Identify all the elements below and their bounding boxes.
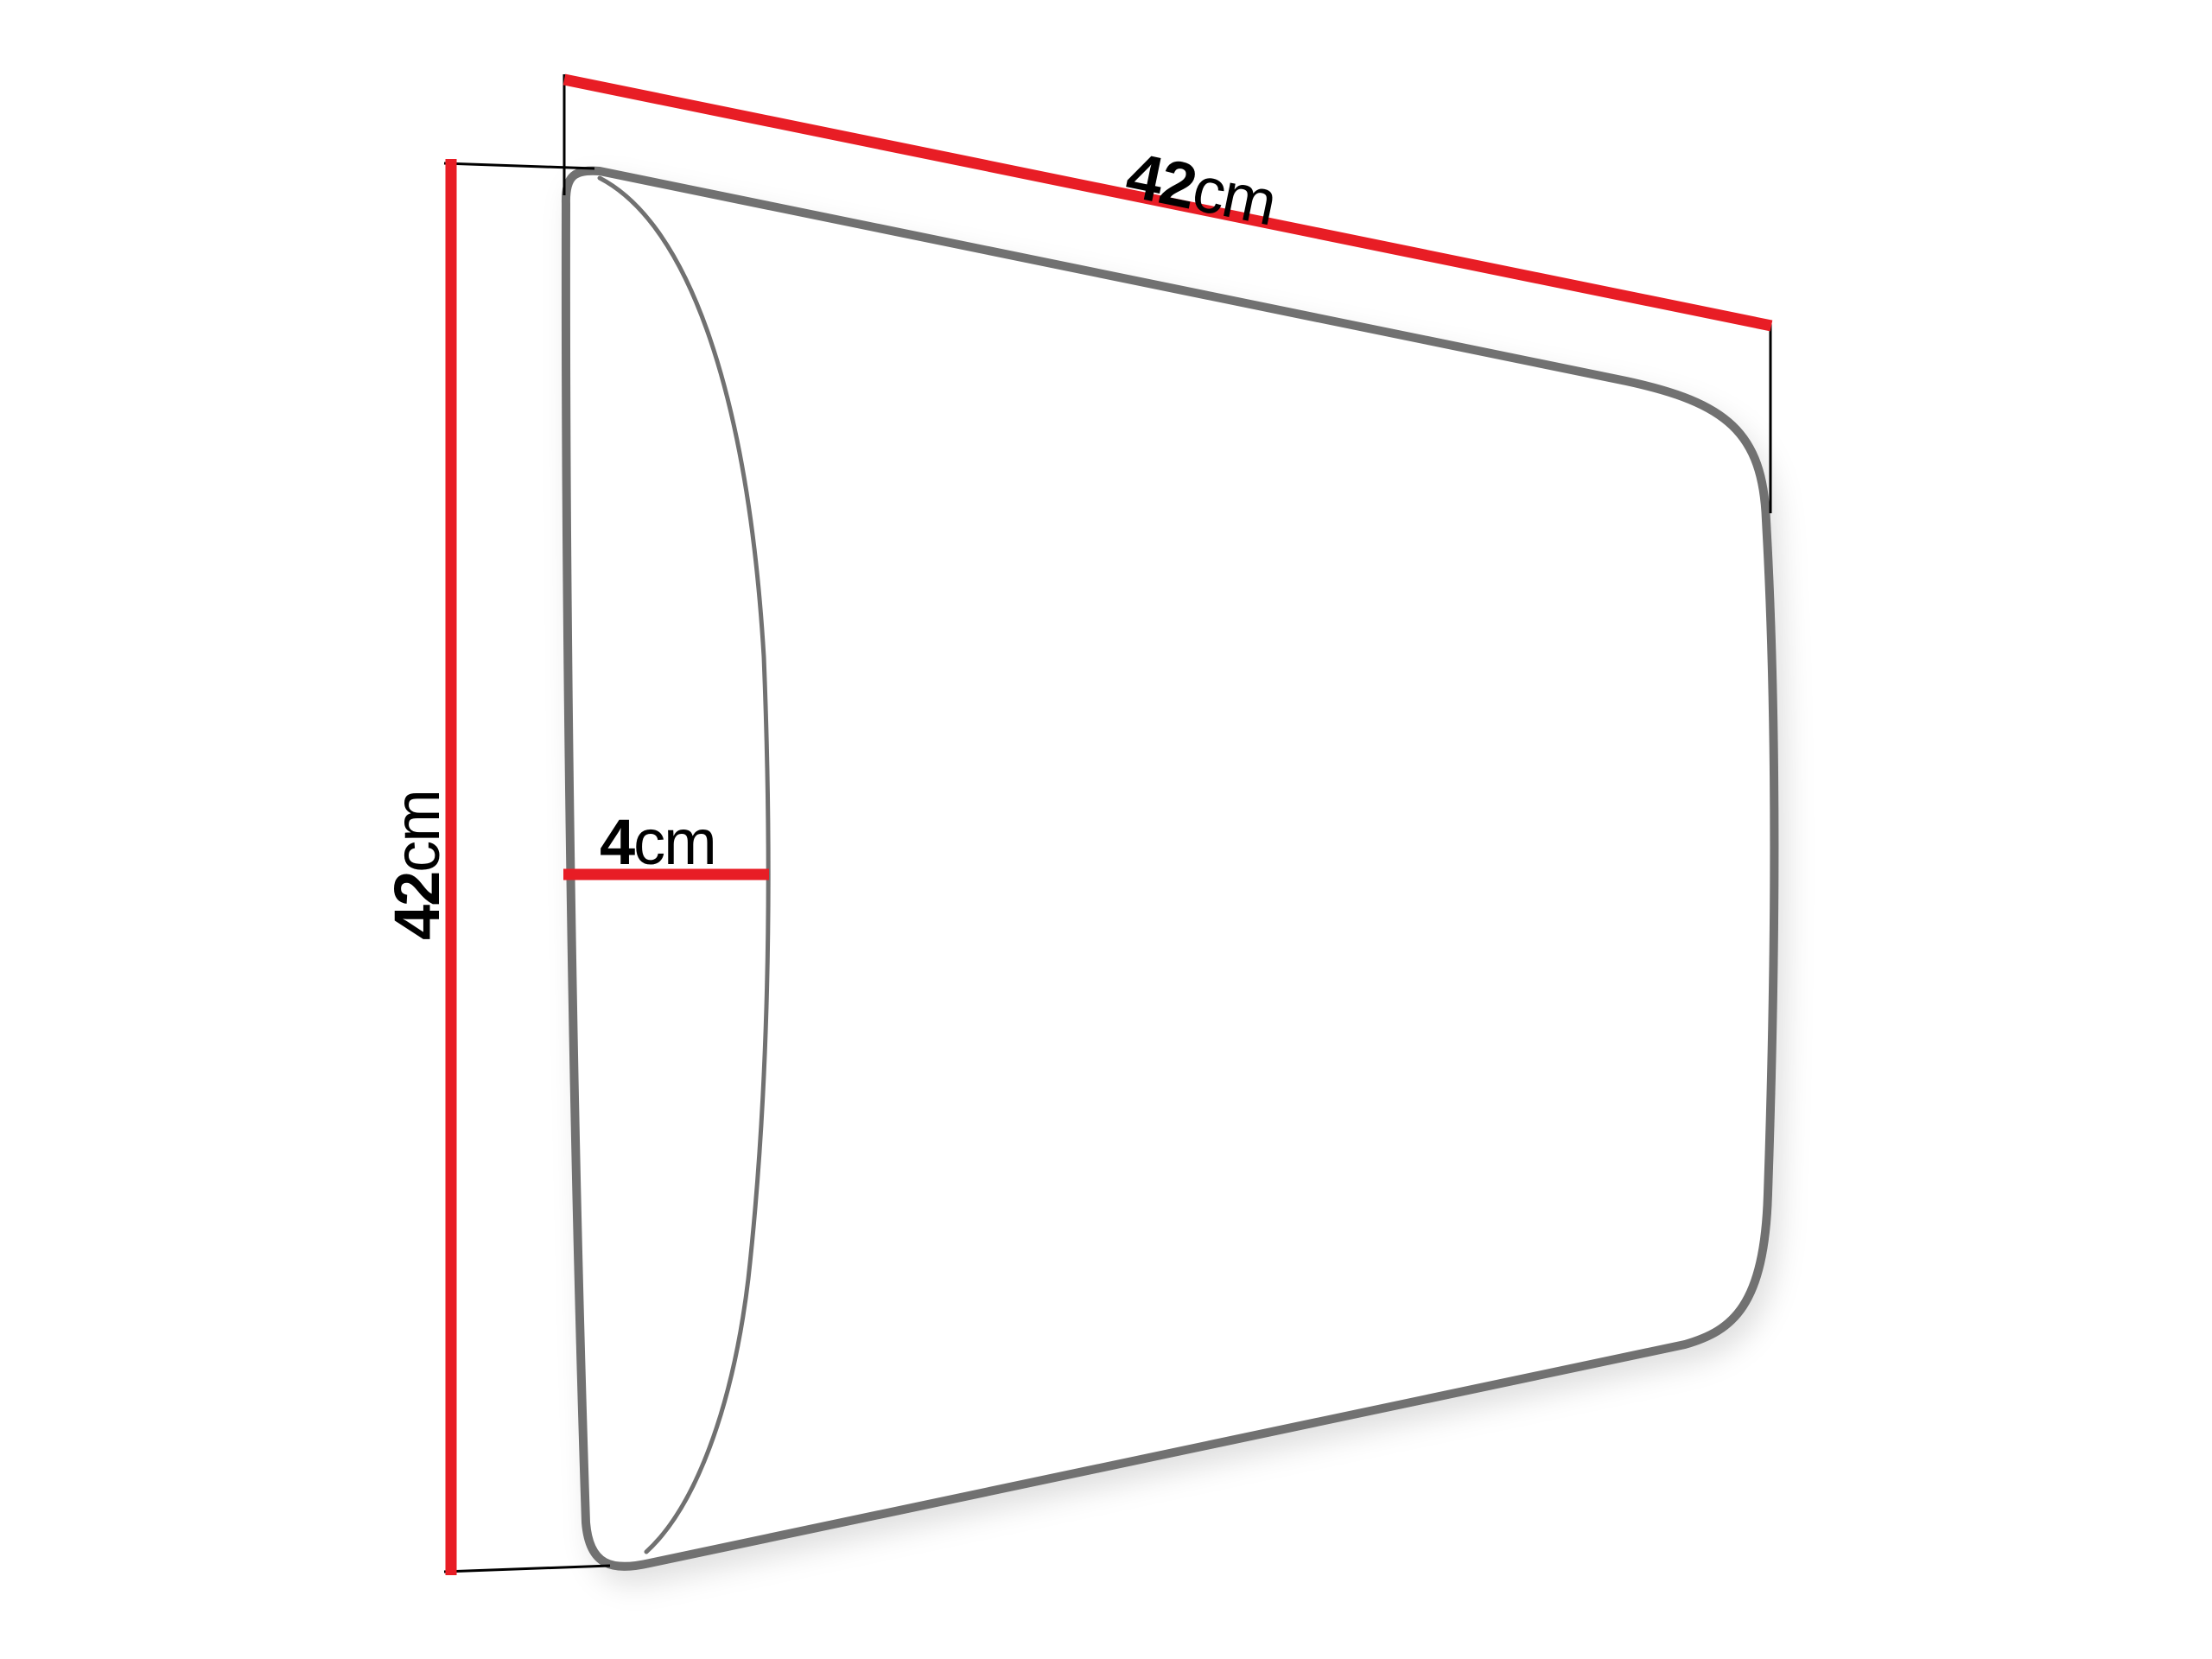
panel-dimension-drawing: 42cm 42cm 4cm: [0, 0, 2212, 1659]
depth-dimension-label: 4cm: [600, 806, 715, 878]
extension-line-top-left-horizontal: [444, 163, 594, 168]
extension-line-bottom-left-horizontal: [444, 1566, 610, 1572]
height-value: 42: [381, 873, 453, 940]
width-unit: cm: [1186, 152, 1281, 238]
depth-value: 4: [600, 806, 635, 878]
height-dimension-label: 42cm: [381, 791, 453, 940]
height-unit: cm: [381, 791, 453, 873]
dimension-diagram: 42cm 42cm 4cm: [0, 0, 2212, 1659]
depth-unit: cm: [633, 806, 715, 878]
width-dimension-label: 42cm: [1121, 138, 1281, 238]
panel-outline: [566, 171, 1774, 1567]
